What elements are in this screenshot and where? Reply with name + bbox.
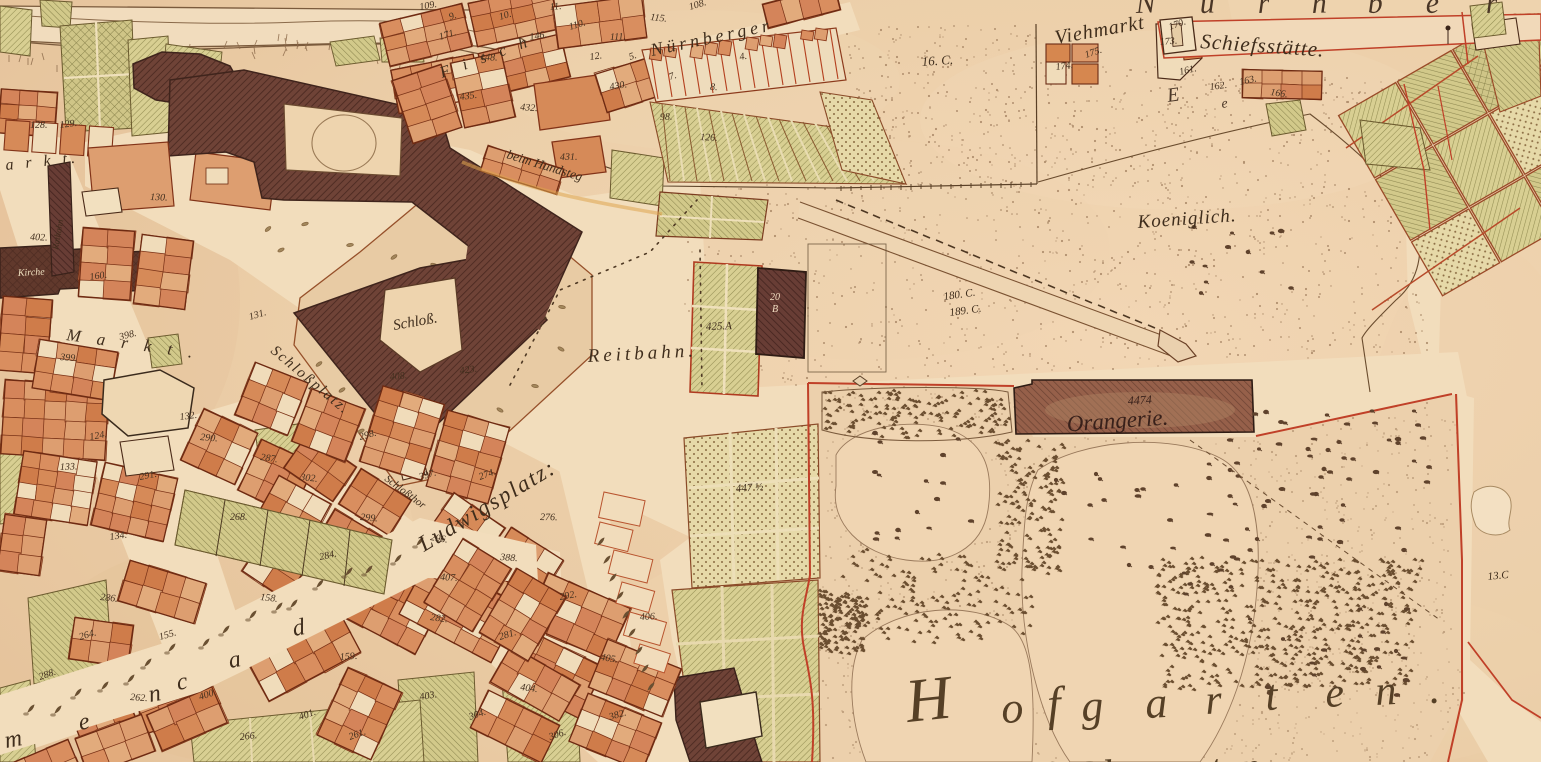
svg-text:388.: 388. xyxy=(499,552,518,564)
svg-text:ü: ü xyxy=(1199,0,1215,20)
svg-text:447 ½: 447 ½ xyxy=(735,481,763,495)
svg-text:148.: 148. xyxy=(480,52,498,64)
svg-text:129.: 129. xyxy=(59,118,78,131)
svg-text:286.: 286. xyxy=(100,592,119,605)
svg-text:407.: 407. xyxy=(440,572,458,584)
svg-text:12.: 12. xyxy=(589,50,603,63)
svg-text:268.: 268. xyxy=(230,512,248,523)
svg-text:b: b xyxy=(1367,0,1383,20)
svg-text:130.: 130. xyxy=(150,192,168,204)
svg-text:262.: 262. xyxy=(130,692,148,704)
svg-text:8.: 8. xyxy=(710,82,718,93)
svg-text:13.C: 13.C xyxy=(1487,569,1510,583)
svg-text:402.: 402. xyxy=(30,232,48,244)
svg-text:o: o xyxy=(1000,683,1025,733)
svg-text:e: e xyxy=(1425,0,1439,20)
svg-text:159.: 159. xyxy=(339,651,357,663)
svg-text:r: r xyxy=(1204,677,1223,724)
svg-text:98.: 98. xyxy=(660,112,673,123)
svg-text:406.: 406. xyxy=(640,611,658,623)
svg-text:4474: 4474 xyxy=(1127,392,1152,407)
svg-text:115.: 115. xyxy=(650,12,668,25)
svg-text:404.: 404. xyxy=(520,682,539,695)
svg-text:431.: 431. xyxy=(560,152,578,163)
svg-text:n: n xyxy=(1311,0,1327,20)
svg-text:n: n xyxy=(1374,668,1397,715)
svg-text:132.: 132. xyxy=(179,410,198,423)
svg-text:432.: 432. xyxy=(520,102,538,114)
svg-text:173.: 173. xyxy=(1159,36,1177,48)
svg-text:a: a xyxy=(1144,678,1169,728)
svg-text:162.: 162. xyxy=(1209,80,1228,93)
svg-text:399.: 399. xyxy=(59,352,78,364)
svg-text:302.: 302. xyxy=(299,472,319,485)
svg-text:r: r xyxy=(1257,0,1270,20)
svg-text:11.: 11. xyxy=(549,1,562,13)
svg-text:20: 20 xyxy=(770,292,780,303)
svg-text:299.: 299. xyxy=(360,512,378,524)
svg-text:266.: 266. xyxy=(239,730,258,743)
svg-text:111.: 111. xyxy=(610,31,626,43)
svg-text:Kirche: Kirche xyxy=(17,267,46,279)
svg-text:425.A: 425.A xyxy=(706,320,733,333)
svg-text:126.: 126. xyxy=(700,132,718,144)
svg-text:e: e xyxy=(1324,670,1345,717)
svg-text:174.: 174. xyxy=(1055,60,1074,73)
svg-text:158.: 158. xyxy=(260,592,279,605)
svg-text:435.: 435. xyxy=(459,90,478,103)
svg-text:B: B xyxy=(772,304,778,315)
svg-text:408.: 408. xyxy=(389,370,408,383)
svg-text:290.: 290. xyxy=(200,432,218,444)
svg-text:128.: 128. xyxy=(30,120,48,131)
svg-text:g: g xyxy=(1080,681,1105,731)
svg-text:16. C.: 16. C. xyxy=(921,52,953,69)
svg-text:276.: 276. xyxy=(540,512,558,523)
svg-text:133.: 133. xyxy=(60,461,78,473)
svg-text:r: r xyxy=(1485,0,1498,20)
